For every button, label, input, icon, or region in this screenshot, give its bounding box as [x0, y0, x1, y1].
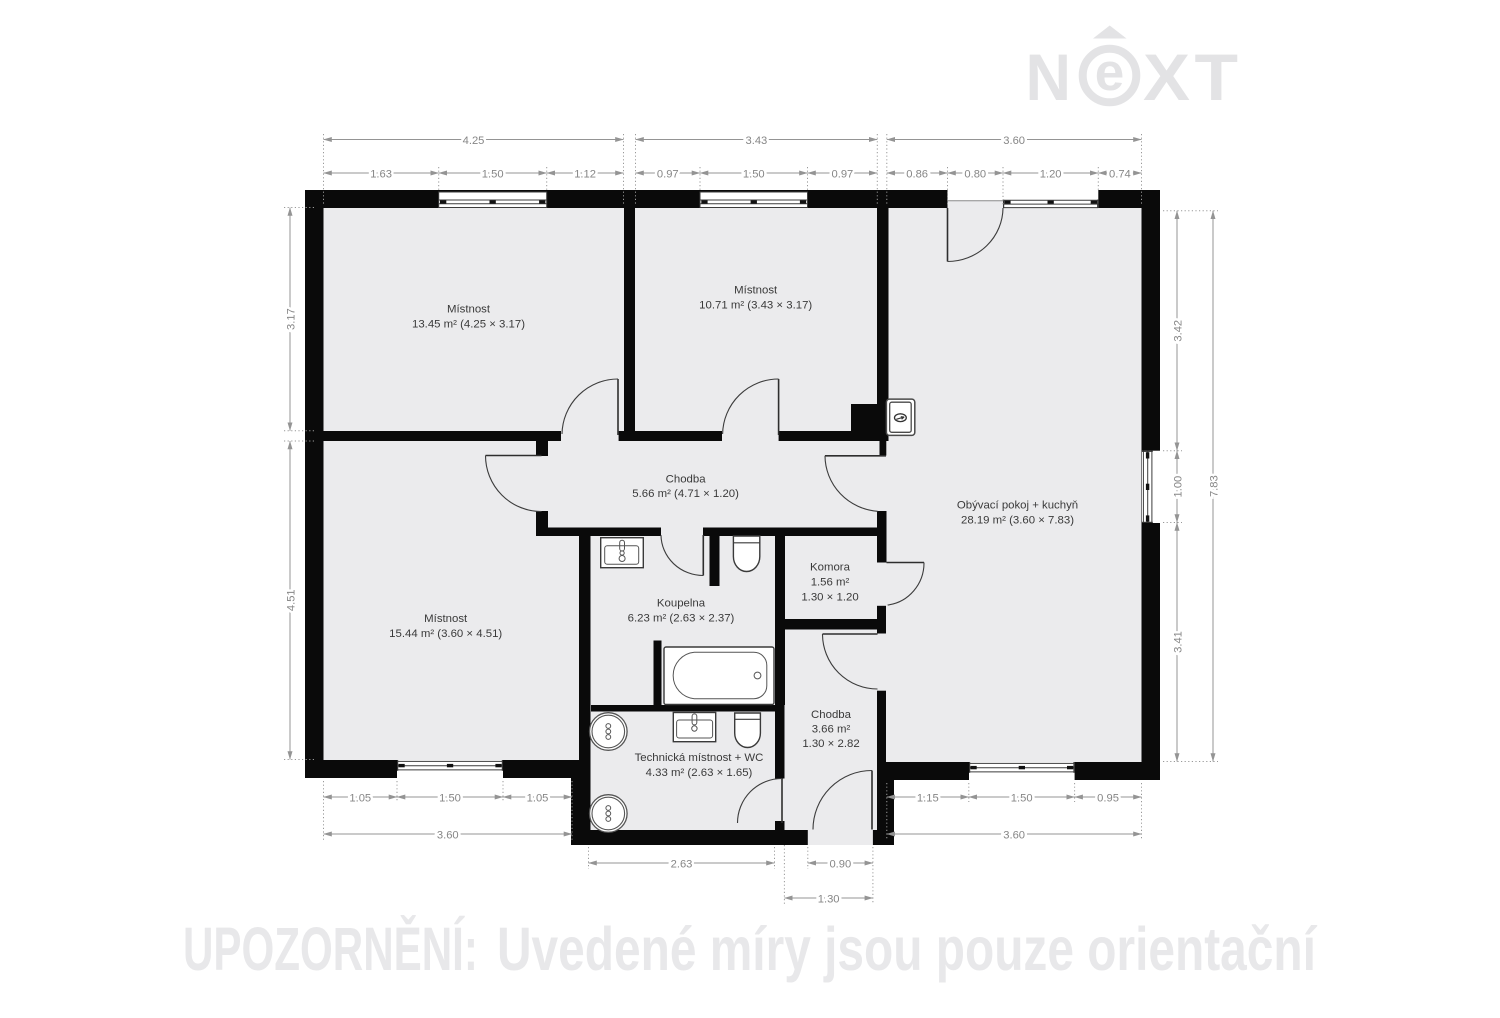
svg-text:UPOZORNĚNÍ:: UPOZORNĚNÍ: — [183, 915, 478, 984]
svg-text:1.56 m²: 1.56 m² — [811, 577, 850, 589]
svg-text:1.00: 1.00 — [1172, 476, 1184, 498]
svg-text:3.60: 3.60 — [437, 829, 459, 841]
svg-text:1.15: 1.15 — [917, 792, 939, 804]
svg-text:T: T — [1195, 40, 1239, 114]
svg-text:1.30 × 1.20: 1.30 × 1.20 — [801, 592, 858, 604]
svg-text:1.30: 1.30 — [818, 893, 840, 905]
svg-text:0.90: 0.90 — [829, 858, 851, 870]
svg-text:0.74: 0.74 — [1109, 168, 1131, 180]
svg-text:1.50: 1.50 — [1011, 792, 1033, 804]
svg-text:Chodba: Chodba — [811, 709, 852, 721]
svg-text:Místnost: Místnost — [447, 304, 491, 316]
svg-text:N: N — [1026, 40, 1072, 114]
svg-text:1.50: 1.50 — [439, 792, 461, 804]
svg-text:1.30 × 2.82: 1.30 × 2.82 — [802, 738, 859, 750]
svg-text:3.60: 3.60 — [1003, 135, 1025, 147]
svg-text:10.71 m² (3.43 × 3.17): 10.71 m² (3.43 × 3.17) — [699, 300, 812, 312]
svg-text:5.66 m² (4.71 × 1.20): 5.66 m² (4.71 × 1.20) — [632, 488, 739, 500]
svg-text:Komora: Komora — [810, 562, 851, 574]
svg-text:4.33 m² (2.63 × 1.65): 4.33 m² (2.63 × 1.65) — [646, 767, 753, 779]
svg-text:Chodba: Chodba — [666, 474, 707, 486]
svg-text:1.05: 1.05 — [527, 792, 549, 804]
svg-text:0.80: 0.80 — [964, 168, 986, 180]
svg-text:28.19 m² (3.60 × 7.83): 28.19 m² (3.60 × 7.83) — [961, 515, 1074, 527]
svg-text:Místnost: Místnost — [734, 285, 778, 297]
svg-text:1.20: 1.20 — [1040, 168, 1062, 180]
svg-text:1.63: 1.63 — [370, 168, 392, 180]
svg-text:Obývací pokoj + kuchyň: Obývací pokoj + kuchyň — [957, 500, 1078, 512]
svg-text:3.17: 3.17 — [285, 308, 297, 330]
svg-text:13.45 m² (4.25 × 3.17): 13.45 m² (4.25 × 3.17) — [412, 319, 525, 331]
svg-text:4.51: 4.51 — [285, 589, 297, 611]
svg-text:1.50: 1.50 — [482, 168, 504, 180]
svg-text:Uvedené míry jsou pouze orient: Uvedené míry jsou pouze orientační — [497, 914, 1317, 983]
svg-text:1.12: 1.12 — [574, 168, 596, 180]
svg-text:X: X — [1143, 40, 1190, 114]
svg-text:2.63: 2.63 — [671, 858, 693, 870]
svg-text:3.41: 3.41 — [1172, 631, 1184, 653]
svg-text:0.86: 0.86 — [906, 168, 928, 180]
svg-text:Koupelna: Koupelna — [657, 598, 706, 610]
svg-text:6.23 m² (2.63 × 2.37): 6.23 m² (2.63 × 2.37) — [628, 613, 735, 625]
svg-text:1.50: 1.50 — [743, 168, 765, 180]
svg-text:1.05: 1.05 — [349, 792, 371, 804]
svg-text:3.43: 3.43 — [746, 135, 768, 147]
svg-text:e: e — [1095, 43, 1124, 102]
svg-text:Technická místnost + WC: Technická místnost + WC — [635, 752, 764, 764]
svg-text:Místnost: Místnost — [424, 613, 468, 625]
svg-text:0.95: 0.95 — [1097, 792, 1119, 804]
svg-text:3.42: 3.42 — [1172, 320, 1184, 342]
svg-text:0.97: 0.97 — [832, 168, 854, 180]
svg-text:3.66 m²: 3.66 m² — [812, 724, 851, 736]
svg-text:15.44 m² (3.60 × 4.51): 15.44 m² (3.60 × 4.51) — [389, 628, 502, 640]
svg-text:3.60: 3.60 — [1003, 829, 1025, 841]
svg-text:4.25: 4.25 — [463, 135, 485, 147]
svg-text:0.97: 0.97 — [657, 168, 679, 180]
svg-text:7.83: 7.83 — [1208, 475, 1220, 497]
